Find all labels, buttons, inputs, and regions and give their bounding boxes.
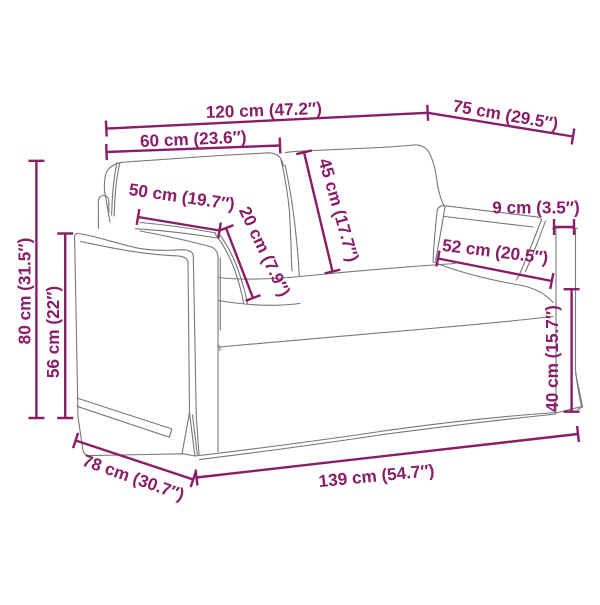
- svg-text:120 cm (47.2″): 120 cm (47.2″): [205, 98, 322, 122]
- svg-text:56 cm (22″): 56 cm (22″): [43, 286, 63, 378]
- svg-text:9 cm (3.5″): 9 cm (3.5″): [492, 198, 580, 218]
- svg-text:80 cm (31.5″): 80 cm (31.5″): [15, 238, 35, 345]
- svg-text:40 cm (15.7″): 40 cm (15.7″): [542, 305, 562, 412]
